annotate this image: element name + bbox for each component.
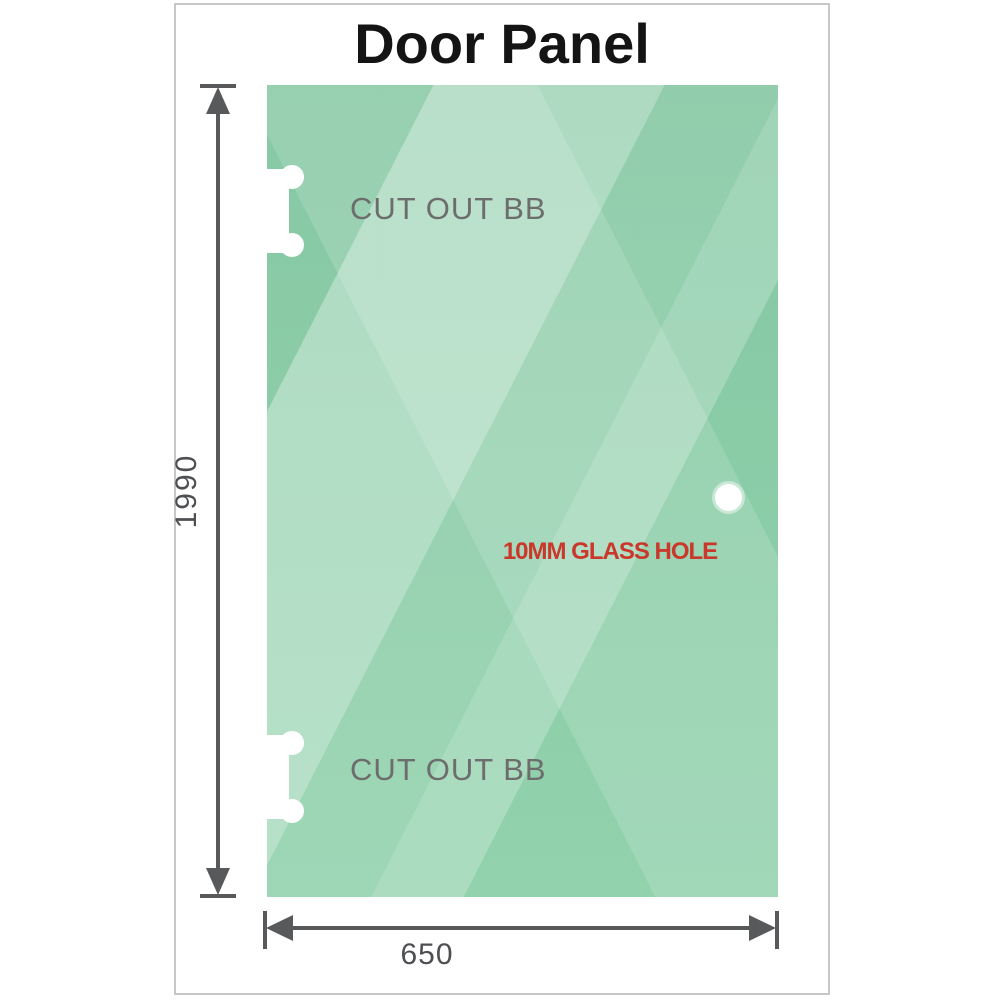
glass-hole-label: 10MM GLASS HOLE <box>460 538 760 566</box>
page-title: Door Panel <box>174 16 830 72</box>
cutout-slot <box>266 169 289 253</box>
cutout-label-top: CUT OUT BB <box>350 191 610 227</box>
height-dimension-line <box>216 96 220 886</box>
arrow-left-icon <box>266 915 293 941</box>
door-panel-diagram: Door Panel CUT OUT BB CUT OUT BB 10MM GL… <box>0 0 1000 1000</box>
width-dimension-label: 650 <box>352 938 502 972</box>
hinge-cutout-top <box>266 164 308 260</box>
glass-hole <box>715 484 742 511</box>
height-dimension-label: 1990 <box>167 421 207 561</box>
arrow-right-icon <box>749 915 776 941</box>
cutout-label-bottom: CUT OUT BB <box>350 752 610 788</box>
arrow-up-icon <box>206 87 230 114</box>
width-dimension-line <box>272 926 772 930</box>
arrow-down-icon <box>206 868 230 895</box>
cutout-slot <box>266 735 289 819</box>
hinge-cutout-bottom <box>266 730 308 826</box>
